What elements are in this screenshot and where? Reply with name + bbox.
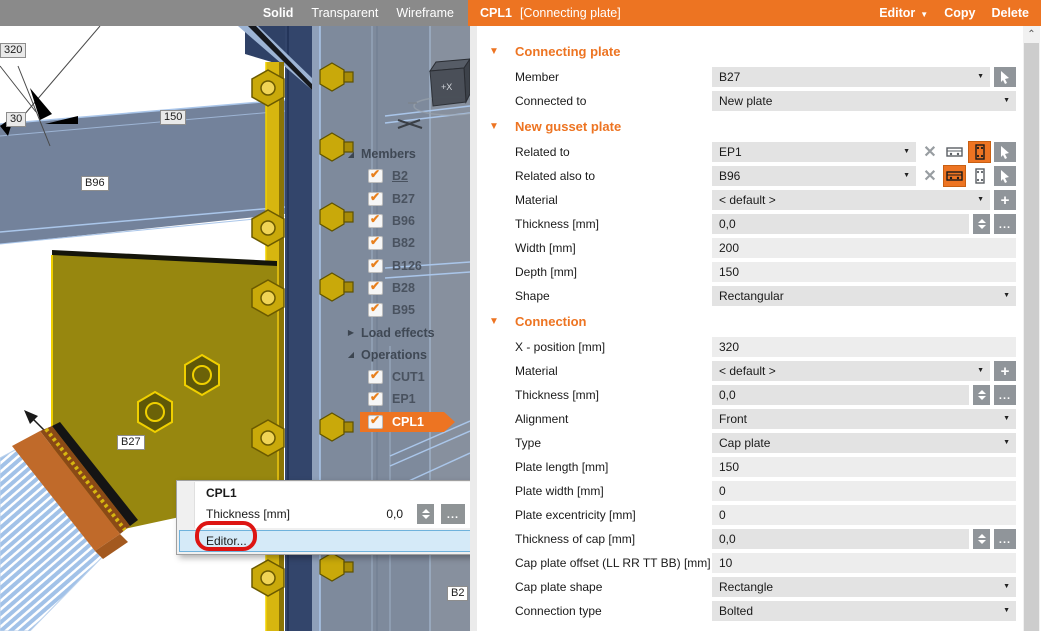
editor-button[interactable]: Editor▼ (879, 6, 928, 20)
spinner-stepper[interactable] (973, 385, 990, 405)
plate-side-icon[interactable] (969, 166, 990, 186)
operation-subtitle: [Connecting plate] (520, 6, 621, 20)
chevron-down-icon: ▼ (977, 361, 984, 381)
tree-item-label: B95 (392, 303, 415, 317)
property-label: Alignment (470, 412, 712, 426)
viewport-3d[interactable]: +X 32030150B96B27B2 ◢MembersB2B27B96B82B… (0, 26, 470, 631)
add-plus-icon[interactable]: + (994, 361, 1016, 381)
property-label: Shape (470, 289, 712, 303)
spinner-stepper[interactable] (973, 529, 990, 549)
tree-item-cpl1[interactable]: CPL1 (341, 411, 467, 433)
panel-scrollbar[interactable]: ⌃ (1023, 26, 1040, 631)
property-row: Material< default >▼+ (470, 359, 1023, 383)
property-row: TypeCap plate▼ (470, 431, 1023, 455)
section-connecting-plate[interactable]: ▼Connecting plate (470, 38, 1023, 65)
plate-side-icon-active[interactable] (969, 142, 990, 162)
property-row: AlignmentFront▼ (470, 407, 1023, 431)
pick-cursor-icon[interactable] (994, 142, 1016, 162)
tree-group-label: Members (361, 147, 416, 161)
chevron-down-icon: ▼ (920, 10, 928, 19)
property-label: Plate length [mm] (470, 460, 712, 474)
plate-front-icon[interactable] (944, 142, 965, 162)
property-row: Thickness [mm]0,0... (470, 212, 1023, 236)
dropdown-field[interactable]: B96▼ (712, 166, 916, 186)
input-field[interactable]: 150 (712, 457, 1016, 477)
checkbox-checked[interactable] (368, 370, 383, 384)
tree-item-b27[interactable]: B27 (341, 188, 467, 210)
property-row: Connected toNew plate▼ (470, 89, 1023, 113)
dropdown-field[interactable]: < default >▼ (712, 361, 990, 381)
tree-item-b126[interactable]: B126 (341, 254, 467, 276)
property-label: Related also to (470, 169, 712, 183)
copy-button[interactable]: Copy (944, 6, 975, 20)
property-label: Cap plate offset (LL RR TT BB) [mm] (470, 556, 712, 570)
section-collapse-icon[interactable]: ▼ (489, 46, 515, 57)
property-label: Thickness [mm] (470, 217, 712, 231)
remove-x-icon[interactable]: ✕ (920, 142, 940, 162)
input-field[interactable]: 0,0 (712, 214, 969, 234)
property-label: Type (470, 436, 712, 450)
add-plus-icon[interactable]: + (994, 190, 1016, 210)
dropdown-field[interactable]: Cap plate▼ (712, 433, 1016, 453)
input-field[interactable]: 0 (712, 505, 1016, 525)
operation-title: CPL1 (480, 6, 512, 20)
tree-group-members[interactable]: ◢Members (341, 143, 467, 165)
properties-panel: ▼Connecting plateMemberB27▼Connected toN… (470, 26, 1041, 631)
tree-group-label: Load effects (361, 326, 435, 340)
popup-more-button[interactable]: ... (441, 504, 465, 524)
member-label-b27[interactable]: B27 (117, 435, 145, 450)
property-row: Width [mm]200 (470, 236, 1023, 260)
plate-front-icon-active[interactable] (944, 166, 965, 186)
checkbox-checked[interactable] (368, 236, 383, 250)
chevron-down-icon: ▼ (1003, 601, 1010, 621)
input-field[interactable]: 0,0 (712, 529, 969, 549)
section-collapse-icon[interactable]: ▼ (489, 316, 515, 327)
property-row: Cap plate offset (LL RR TT BB) [mm]10 (470, 551, 1023, 575)
dropdown-field[interactable]: Front▼ (712, 409, 1016, 429)
app-window: SolidTransparentWireframe CPL1 [Connecti… (0, 0, 1041, 631)
tree-item-b96[interactable]: B96 (341, 210, 467, 232)
pick-cursor-icon[interactable] (994, 166, 1016, 186)
tree-item-label: CPL1 (392, 415, 424, 429)
popup-thickness-value[interactable]: 0,0 (373, 507, 403, 521)
property-label: Thickness of cap [mm] (470, 532, 712, 546)
section-label: New gusset plate (515, 119, 621, 134)
chevron-down-icon: ▼ (1003, 91, 1010, 111)
input-field[interactable]: 320 (712, 337, 1016, 357)
property-row: Related toEP1▼✕ (470, 140, 1023, 164)
property-label: Thickness [mm] (470, 388, 712, 402)
chevron-down-icon: ▼ (1003, 409, 1010, 429)
dimension-label: 30 (6, 112, 26, 127)
property-row: ShapeRectangular▼ (470, 284, 1023, 308)
tree-item-label: CUT1 (392, 370, 425, 384)
member-label-b2[interactable]: B2 (447, 586, 468, 601)
tree-item-cut1[interactable]: CUT1 (341, 366, 467, 388)
chevron-down-icon: ▼ (1003, 286, 1010, 306)
pick-cursor-icon[interactable] (994, 67, 1016, 87)
property-label: Material (470, 364, 712, 378)
checkbox-checked[interactable] (368, 281, 383, 295)
scrollbar-thumb[interactable] (1024, 43, 1039, 631)
tree-item-label: B96 (392, 214, 415, 228)
input-field[interactable]: 0 (712, 481, 1016, 501)
section-collapse-icon[interactable]: ▼ (489, 121, 515, 132)
tree-item-b95[interactable]: B95 (341, 299, 467, 321)
tree-item-label: B27 (392, 192, 415, 206)
delete-button[interactable]: Delete (991, 6, 1029, 20)
checkbox-checked[interactable] (368, 192, 383, 206)
property-row: Thickness [mm]0,0... (470, 383, 1023, 407)
tree-item-label: B2 (392, 169, 408, 183)
operation-header: CPL1 [Connecting plate] Editor▼CopyDelet… (468, 0, 1041, 26)
tree-group-operations[interactable]: ◢Operations (341, 344, 467, 366)
member-label-b96[interactable]: B96 (81, 176, 109, 191)
section-connection[interactable]: ▼Connection (470, 308, 1023, 335)
property-row: X - position [mm]320 (470, 335, 1023, 359)
property-row: Cap plate shapeRectangle▼ (470, 575, 1023, 599)
property-rows: ▼Connecting plateMemberB27▼Connected toN… (470, 38, 1023, 623)
chevron-down-icon: ▼ (1003, 433, 1010, 453)
tree-group-label: Operations (361, 348, 427, 362)
view-mode-toolbar: SolidTransparentWireframe (0, 0, 468, 26)
section-label: Connection (515, 314, 587, 329)
dimension-label: 150 (160, 110, 186, 125)
context-popup: CPL1 Thickness [mm] 0,0 ... Editor... (176, 480, 470, 555)
tree-item-label: EP1 (392, 392, 416, 406)
property-row: Plate length [mm]150 (470, 455, 1023, 479)
dropdown-field[interactable]: Rectangle▼ (712, 577, 1016, 597)
input-field[interactable]: 150 (712, 262, 1016, 282)
input-field[interactable]: 10 (712, 553, 1016, 573)
property-row: Related also toB96▼✕ (470, 164, 1023, 188)
popup-title: CPL1 (206, 486, 237, 500)
tree-group-load-effects[interactable]: ▶Load effects (341, 321, 467, 343)
property-row: Connection typeBolted▼ (470, 599, 1023, 623)
chevron-expanded-icon[interactable]: ◢ (341, 350, 361, 359)
chevron-collapsed-icon[interactable]: ▶ (341, 328, 361, 337)
chevron-down-icon: ▼ (903, 142, 910, 162)
dropdown-field[interactable]: < default >▼ (712, 190, 990, 210)
more-options-button[interactable]: ... (994, 529, 1016, 549)
dropdown-field[interactable]: B27▼ (712, 67, 990, 87)
chevron-down-icon: ▼ (903, 166, 910, 186)
remove-x-icon[interactable]: ✕ (920, 166, 940, 186)
chevron-down-icon: ▼ (1003, 577, 1010, 597)
tree-item-label: B82 (392, 236, 415, 250)
dropdown-field[interactable]: Bolted▼ (712, 601, 1016, 621)
header-actions: Editor▼CopyDelete (879, 6, 1029, 20)
property-label: Related to (470, 145, 712, 159)
chevron-down-icon: ▼ (977, 67, 984, 87)
checkbox-checked[interactable] (368, 392, 383, 406)
spinner-stepper[interactable] (973, 214, 990, 234)
more-options-button[interactable]: ... (994, 385, 1016, 405)
checkbox-checked[interactable] (368, 259, 383, 273)
tree-item-label: B28 (392, 281, 415, 295)
tree-item-b82[interactable]: B82 (341, 232, 467, 254)
property-row: Depth [mm]150 (470, 260, 1023, 284)
scene-tree: ◢MembersB2B27B96B82B126B28B95▶Load effec… (341, 143, 467, 433)
dropdown-field[interactable]: New plate▼ (712, 91, 1016, 111)
chevron-expanded-icon[interactable]: ◢ (341, 150, 361, 159)
input-field[interactable]: 200 (712, 238, 1016, 258)
popup-card: CPL1 Thickness [mm] 0,0 ... (194, 482, 470, 528)
property-label: Material (470, 193, 712, 207)
dimension-label: 320 (0, 43, 26, 58)
section-label: Connecting plate (515, 44, 620, 59)
tree-item-b28[interactable]: B28 (341, 277, 467, 299)
tree-item-b2[interactable]: B2 (341, 165, 467, 187)
property-label: Connected to (470, 94, 712, 108)
property-label: Connection type (470, 604, 712, 618)
property-label: Plate width [mm] (470, 484, 712, 498)
property-label: X - position [mm] (470, 340, 712, 354)
view-mode-solid[interactable]: Solid (263, 6, 294, 20)
checkbox-checked[interactable] (368, 415, 383, 429)
tree-item-label: B126 (392, 259, 422, 273)
property-label: Width [mm] (470, 241, 712, 255)
property-row: MemberB27▼ (470, 65, 1023, 89)
checkbox-checked[interactable] (368, 169, 383, 183)
property-label: Cap plate shape (470, 580, 712, 594)
scrollbar-up-icon[interactable]: ⌃ (1023, 26, 1040, 43)
view-mode-transparent[interactable]: Transparent (311, 6, 378, 20)
property-row: Thickness of cap [mm]0,0... (470, 527, 1023, 551)
section-new-gusset-plate[interactable]: ▼New gusset plate (470, 113, 1023, 140)
view-mode-wireframe[interactable]: Wireframe (396, 6, 454, 20)
input-field[interactable]: 0,0 (712, 385, 969, 405)
tree-item-ep1[interactable]: EP1 (341, 388, 467, 410)
popup-thickness-label: Thickness [mm] (206, 507, 290, 521)
more-options-button[interactable]: ... (994, 214, 1016, 234)
checkbox-checked[interactable] (368, 214, 383, 228)
chevron-down-icon: ▼ (977, 190, 984, 210)
dropdown-field[interactable]: Rectangular▼ (712, 286, 1016, 306)
property-label: Member (470, 70, 712, 84)
property-row: Plate width [mm]0 (470, 479, 1023, 503)
property-label: Depth [mm] (470, 265, 712, 279)
property-label: Plate excentricity [mm] (470, 508, 712, 522)
checkbox-checked[interactable] (368, 303, 383, 317)
property-row: Plate excentricity [mm]0 (470, 503, 1023, 527)
property-row: Material< default >▼+ (470, 188, 1023, 212)
dropdown-field[interactable]: EP1▼ (712, 142, 916, 162)
popup-spinner[interactable] (417, 504, 434, 524)
axis-cube-label: +X (441, 82, 452, 92)
editor-menu-item[interactable]: Editor... (179, 530, 470, 552)
